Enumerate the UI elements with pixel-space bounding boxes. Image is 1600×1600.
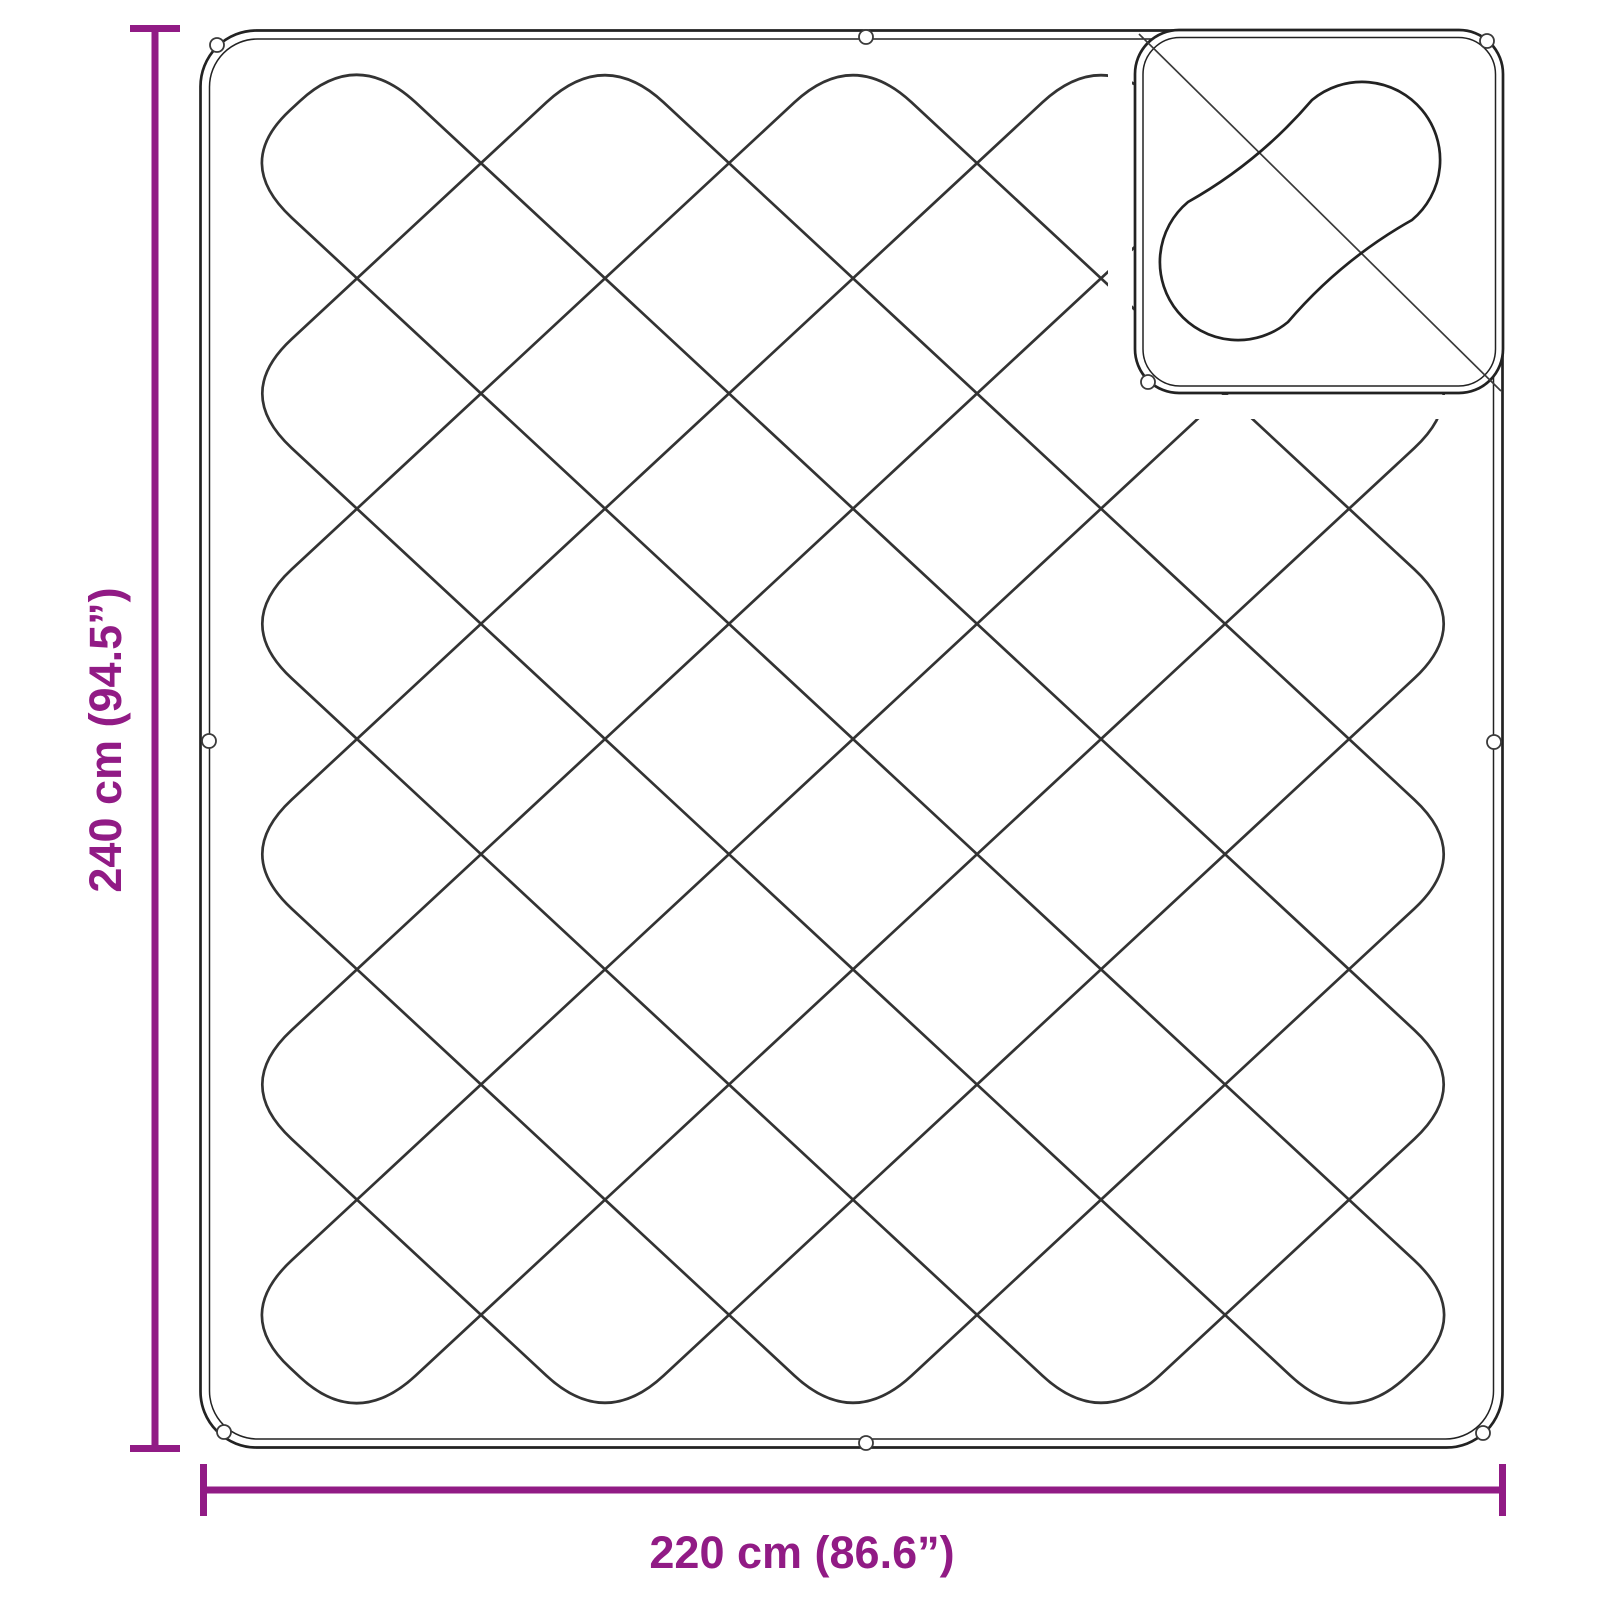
eyelet-icon	[1141, 375, 1155, 389]
blanket-drawing	[0, 0, 1600, 1600]
eyelet-icon	[859, 1436, 873, 1450]
folded-corner	[1135, 30, 1503, 393]
height-dimension-label: 240 cm (94.5”)	[80, 587, 132, 892]
width-dimension-line	[200, 1464, 1506, 1516]
eyelet-icon	[1476, 1426, 1490, 1440]
eyelet-icon	[859, 30, 873, 44]
width-dimension-label: 220 cm (86.6”)	[649, 1527, 954, 1579]
eyelet-icon	[210, 38, 224, 52]
height-dimension-line	[130, 25, 180, 1452]
eyelet-icon	[217, 1425, 231, 1439]
eyelet-icon	[1487, 735, 1501, 749]
blanket-dimension-diagram: 240 cm (94.5”) 220 cm (86.6”)	[0, 0, 1600, 1600]
eyelet-icon	[202, 734, 216, 748]
eyelet-icon	[1480, 34, 1494, 48]
